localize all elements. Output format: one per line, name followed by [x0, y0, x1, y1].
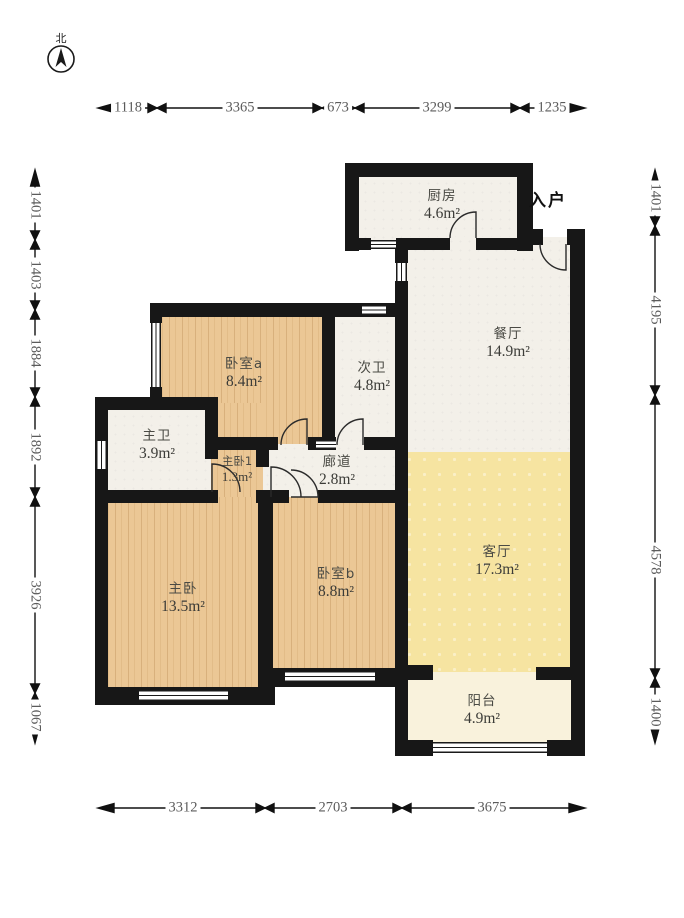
dim-top-3: 3299: [420, 100, 455, 117]
north-label: 北: [56, 30, 67, 46]
dim-top-2: 673: [324, 100, 352, 117]
dim-bottom-0: 3312: [166, 800, 201, 817]
wall-segment: [476, 238, 518, 250]
window-bath-2-north: [362, 305, 386, 315]
dim-bottom-2: 3675: [475, 800, 510, 817]
label-vestibule: 主卧1 1.3m²: [196, 453, 278, 484]
dim-top-0: 1118: [111, 100, 145, 117]
window-kitchen: [371, 240, 396, 249]
wall-segment: [570, 229, 585, 680]
wall-segment: [345, 238, 371, 250]
dim-left-1: 1403: [27, 258, 44, 293]
wall-segment: [395, 281, 408, 305]
label-bedroom-a: 卧室a 8.4m²: [184, 356, 304, 392]
wall-segment: [345, 163, 533, 177]
dim-right-1: 4195: [647, 293, 664, 328]
dim-left-3: 1892: [27, 430, 44, 465]
window-dining-west: [396, 263, 407, 281]
wall-segment: [95, 397, 218, 410]
dim-bottom-1: 2703: [316, 800, 351, 817]
window-master-bedroom-south: [139, 690, 228, 701]
wall-segment: [258, 490, 273, 690]
dim-right-0: 1401: [647, 181, 664, 216]
compass-icon: [48, 46, 74, 72]
vent-corridor: [316, 440, 336, 449]
dim-top-1: 3365: [223, 100, 258, 117]
window-bedroom-a-west: [151, 323, 161, 387]
dim-right-3: 1400: [647, 695, 664, 730]
wall-segment: [150, 303, 162, 323]
dim-left-5: 1067: [27, 700, 44, 735]
wall-segment: [395, 740, 433, 756]
label-kitchen: 厨房 4.6m²: [382, 188, 502, 224]
label-balcony: 阳台 4.9m²: [422, 693, 542, 729]
wall-segment: [547, 740, 585, 756]
dim-left-2: 1884: [27, 336, 44, 371]
label-master-bedroom: 主卧 13.5m²: [123, 581, 243, 617]
floor-plan-canvas: 1118 3365 673 3299 1235 1401 1403 1884 1…: [0, 0, 684, 918]
wall-segment: [364, 437, 408, 450]
label-dining: 餐厅 14.9m²: [448, 326, 568, 362]
wall-segment: [95, 490, 218, 503]
label-living: 客厅 17.3m²: [437, 544, 557, 580]
dim-top-4: 1235: [535, 100, 570, 117]
window-bedroom-b-south: [285, 671, 375, 682]
dim-left-0: 1401: [27, 188, 44, 223]
entrance-label: 入户: [529, 186, 567, 211]
wall-segment: [395, 243, 408, 263]
window-balcony-south: [433, 742, 547, 753]
label-corridor: 廊道 2.8m²: [277, 454, 397, 490]
wall-segment: [533, 229, 543, 245]
dim-right-2: 4578: [647, 543, 664, 578]
wall-segment: [212, 437, 278, 450]
dim-left-4: 3926: [27, 578, 44, 613]
label-bedroom-b: 卧室b 8.8m²: [276, 566, 396, 602]
label-bath-2: 次卫 4.8m²: [312, 360, 432, 396]
